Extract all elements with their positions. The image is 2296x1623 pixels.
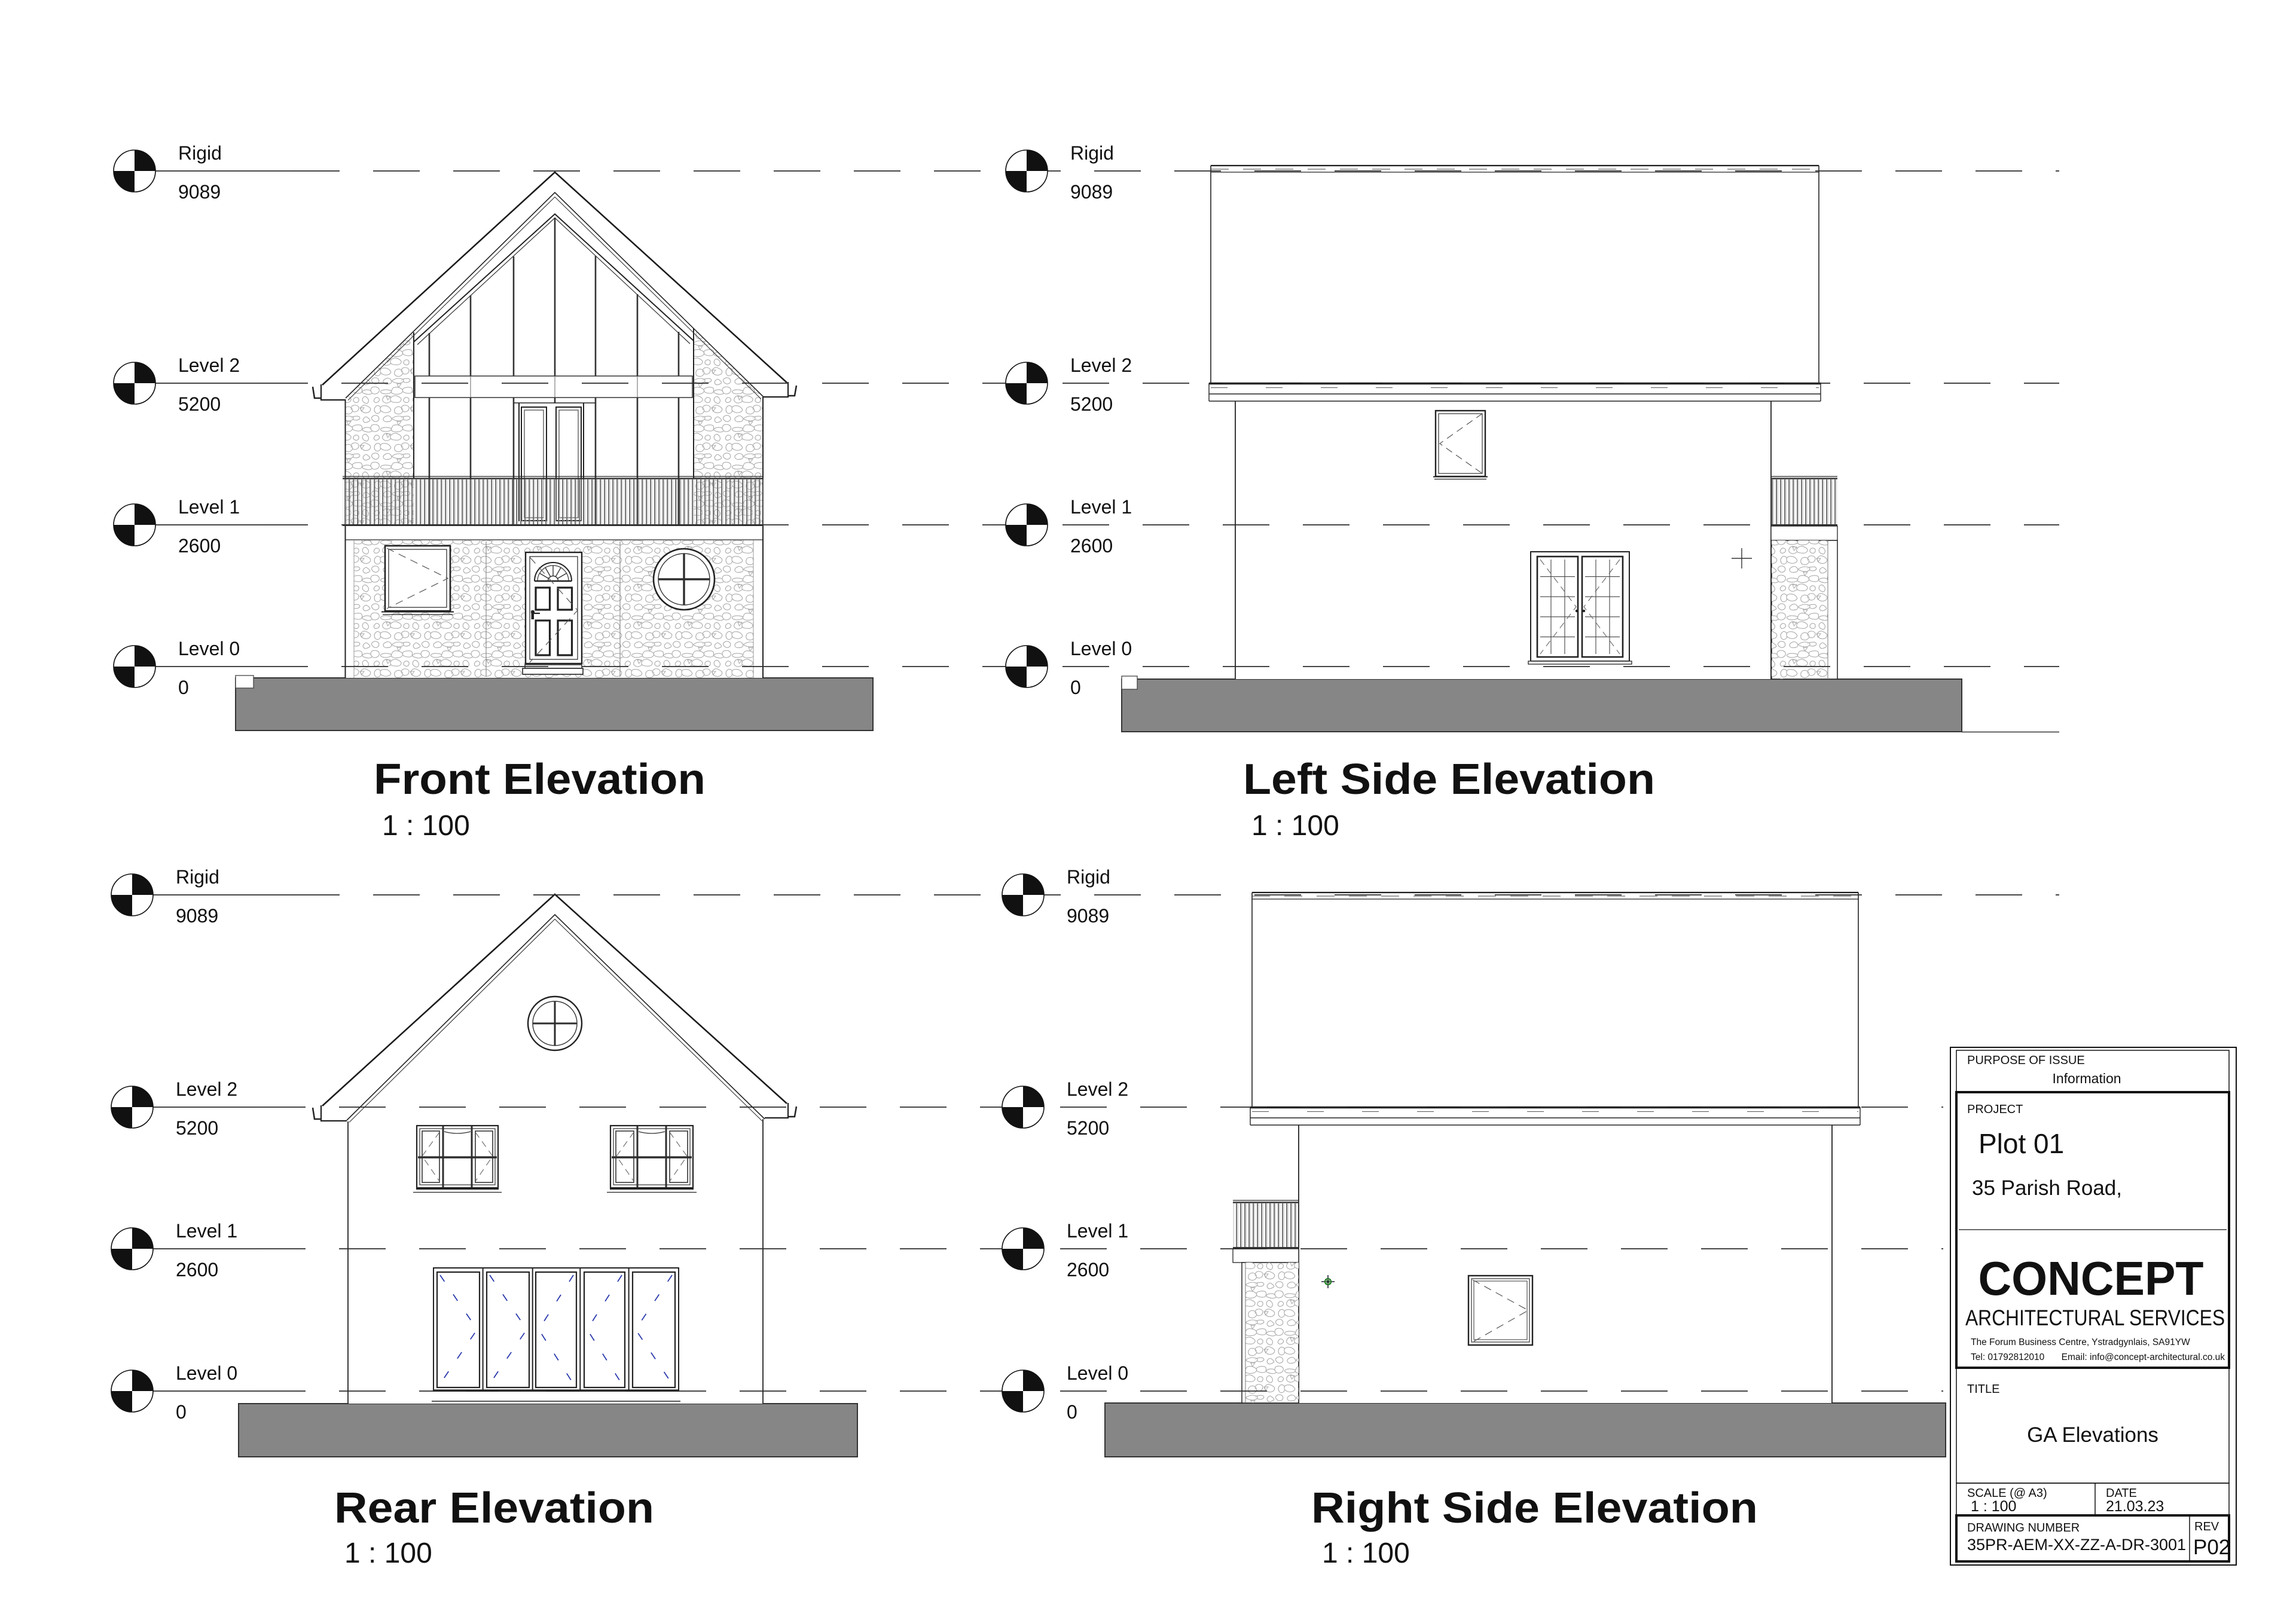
svg-text:2600: 2600: [1070, 535, 1113, 557]
svg-text:Level 2: Level 2: [1067, 1078, 1128, 1100]
svg-text:Level 2: Level 2: [178, 354, 240, 376]
svg-text:P02: P02: [2193, 1536, 2230, 1559]
svg-text:2600: 2600: [176, 1259, 218, 1280]
svg-text:Plot 01: Plot 01: [1979, 1128, 2064, 1159]
svg-text:Level 1: Level 1: [1070, 496, 1132, 518]
svg-text:ARCHITECTURAL SERVICES: ARCHITECTURAL SERVICES: [1965, 1306, 2225, 1330]
svg-text:Rigid: Rigid: [178, 142, 222, 164]
svg-text:2600: 2600: [1067, 1259, 1109, 1280]
svg-text:5200: 5200: [1067, 1117, 1109, 1139]
svg-text:REV: REV: [2194, 1520, 2219, 1533]
svg-text:0: 0: [176, 1401, 187, 1423]
svg-text:PROJECT: PROJECT: [1967, 1103, 2023, 1116]
svg-text:CONCEPT: CONCEPT: [1979, 1252, 2204, 1305]
svg-text:Level 0: Level 0: [176, 1362, 237, 1384]
svg-text:5200: 5200: [178, 393, 221, 415]
svg-text:Level 1: Level 1: [176, 1220, 237, 1242]
svg-text:Level 0: Level 0: [1067, 1362, 1128, 1384]
svg-text:2600: 2600: [178, 535, 221, 557]
svg-text:Rigid: Rigid: [1067, 866, 1110, 888]
svg-text:9089: 9089: [178, 181, 221, 203]
svg-text:GA Elevations: GA Elevations: [2027, 1423, 2158, 1447]
svg-text:Right Side Elevation: Right Side Elevation: [1311, 1484, 1758, 1532]
svg-text:1 : 100: 1 : 100: [1251, 810, 1339, 842]
svg-text:Front Elevation: Front Elevation: [374, 756, 706, 803]
svg-text:1 : 100: 1 : 100: [1322, 1538, 1410, 1569]
svg-text:9089: 9089: [176, 905, 218, 927]
svg-text:35PR-AEM-XX-ZZ-A-DR-3001: 35PR-AEM-XX-ZZ-A-DR-3001: [1967, 1536, 2186, 1554]
svg-text:35 Parish Road,: 35 Parish Road,: [1972, 1176, 2122, 1200]
svg-text:9089: 9089: [1067, 905, 1109, 927]
svg-text:TITLE: TITLE: [1967, 1383, 1999, 1396]
svg-text:0: 0: [1067, 1401, 1077, 1423]
svg-text:The Forum Business Centre, Yst: The Forum Business Centre, Ystradgynlais…: [1971, 1337, 2190, 1347]
svg-text:PURPOSE OF ISSUE: PURPOSE OF ISSUE: [1967, 1054, 2085, 1067]
svg-text:1 : 100: 1 : 100: [382, 810, 470, 842]
svg-text:Rear Elevation: Rear Elevation: [334, 1484, 654, 1532]
svg-text:5200: 5200: [176, 1117, 218, 1139]
svg-text:Level 1: Level 1: [178, 496, 240, 518]
svg-text:21.03.23: 21.03.23: [2106, 1498, 2164, 1515]
svg-text:Level 0: Level 0: [1070, 638, 1132, 659]
svg-text:0: 0: [178, 677, 189, 698]
svg-text:Rigid: Rigid: [176, 866, 219, 888]
svg-text:0: 0: [1070, 677, 1081, 698]
svg-text:Level 2: Level 2: [1070, 354, 1132, 376]
svg-text:Level 0: Level 0: [178, 638, 240, 659]
svg-text:DRAWING NUMBER: DRAWING NUMBER: [1967, 1521, 2080, 1535]
svg-text:Level 1: Level 1: [1067, 1220, 1128, 1242]
svg-text:1 : 100: 1 : 100: [1971, 1498, 2016, 1515]
svg-text:1 : 100: 1 : 100: [344, 1538, 432, 1569]
svg-text:Rigid: Rigid: [1070, 142, 1114, 164]
svg-text:9089: 9089: [1070, 181, 1113, 203]
svg-text:Information: Information: [2052, 1071, 2121, 1086]
svg-text:Tel: 01792812010: Tel: 01792812010: [1971, 1352, 2045, 1362]
svg-text:Email: info@concept-architectu: Email: info@concept-architectural.co.uk: [2062, 1352, 2225, 1362]
svg-text:Level 2: Level 2: [176, 1078, 237, 1100]
svg-text:Left Side Elevation: Left Side Elevation: [1243, 756, 1655, 803]
svg-text:5200: 5200: [1070, 393, 1113, 415]
